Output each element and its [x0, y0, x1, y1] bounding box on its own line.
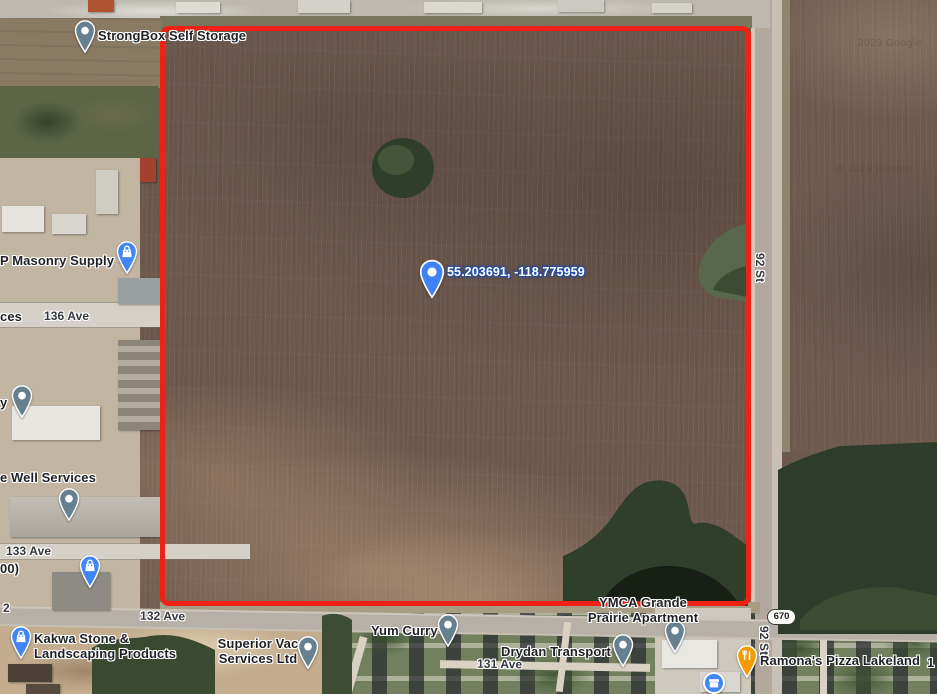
partial-poi-label[interactable]: ces [0, 310, 22, 325]
ymca-label-line1: YMCA Grande [578, 596, 708, 611]
partial-poi-label[interactable]: y [0, 396, 7, 411]
building [26, 684, 60, 694]
partial-poi-label[interactable]: 00) [0, 562, 19, 577]
building [118, 278, 160, 304]
warehouse [10, 497, 160, 537]
storefront-pin-icon[interactable] [702, 671, 726, 694]
street-label-133ave: 133 Ave [6, 545, 51, 558]
strongbox-label[interactable]: StrongBox Self Storage [98, 29, 246, 44]
street-label-92st: 92 St [753, 253, 766, 282]
kakwa-shopping-pin-icon[interactable] [10, 626, 32, 659]
partial-poi-label[interactable]: 1 [927, 656, 934, 671]
masonry-supply-label[interactable]: P Masonry Supply [0, 254, 114, 269]
partial-street-label: 2 [3, 602, 10, 615]
superior-vac-label[interactable]: Superior Vac Services Ltd [206, 637, 310, 666]
parcel-boundary-outline [160, 26, 751, 606]
building [2, 206, 44, 232]
ymca-label-line2: Prairie Apartment [578, 611, 708, 626]
watermark: © 2023 Google [836, 164, 911, 175]
building [176, 2, 220, 13]
kakwa-label-line1: Kakwa Stone & [34, 632, 176, 647]
building [558, 0, 604, 12]
yum-curry-pin-icon[interactable] [437, 614, 459, 647]
map-canvas[interactable]: 2023 Google © 2023 Google StrongBox Self… [0, 0, 937, 694]
masonry-supply-shopping-pin-icon[interactable] [116, 241, 138, 274]
road-92st [751, 0, 782, 694]
watermark: 2023 Google [858, 38, 922, 49]
shopping-pin-icon[interactable] [79, 555, 101, 588]
ramonas-label[interactable]: Ramona's Pizza Lakeland [760, 654, 920, 669]
building [104, 676, 134, 692]
building [96, 170, 118, 214]
building [8, 664, 52, 682]
yum-curry-label[interactable]: Yum Curry [371, 624, 438, 639]
street-label-132ave: 132 Ave [140, 610, 185, 624]
field-east [782, 0, 937, 452]
building [88, 0, 114, 12]
superior-label-line1: Superior Vac [206, 637, 310, 652]
ymca-label[interactable]: YMCA Grande Prairie Apartment [578, 596, 708, 625]
kakwa-label[interactable]: Kakwa Stone & Landscaping Products [34, 632, 176, 661]
building [52, 214, 86, 234]
well-services-pin-icon[interactable] [58, 488, 80, 521]
strongbox-pin-icon[interactable] [74, 20, 96, 53]
street-label-136ave: 136 Ave [44, 310, 89, 323]
building [140, 158, 156, 182]
scrub-vegetation [0, 86, 158, 158]
coordinates-label: 55.203691, -118.775959 [447, 265, 585, 279]
street-label-131ave: 131 Ave [477, 658, 522, 672]
kakwa-label-line2: Landscaping Products [34, 647, 176, 662]
drydan-pin-icon[interactable] [612, 634, 634, 667]
ramonas-restaurant-pin-icon[interactable] [736, 645, 758, 678]
poi-pin-icon[interactable] [11, 385, 33, 418]
well-services-label[interactable]: e Well Services [0, 471, 96, 486]
building [652, 3, 692, 13]
building [424, 2, 482, 13]
superior-label-line2: Services Ltd [206, 652, 310, 667]
building [298, 0, 350, 13]
street-label-92st: 92 St [757, 626, 770, 655]
dropped-location-pin-icon[interactable] [419, 259, 445, 299]
route-670-shield: 670 [767, 609, 796, 625]
storage-containers [118, 340, 160, 430]
